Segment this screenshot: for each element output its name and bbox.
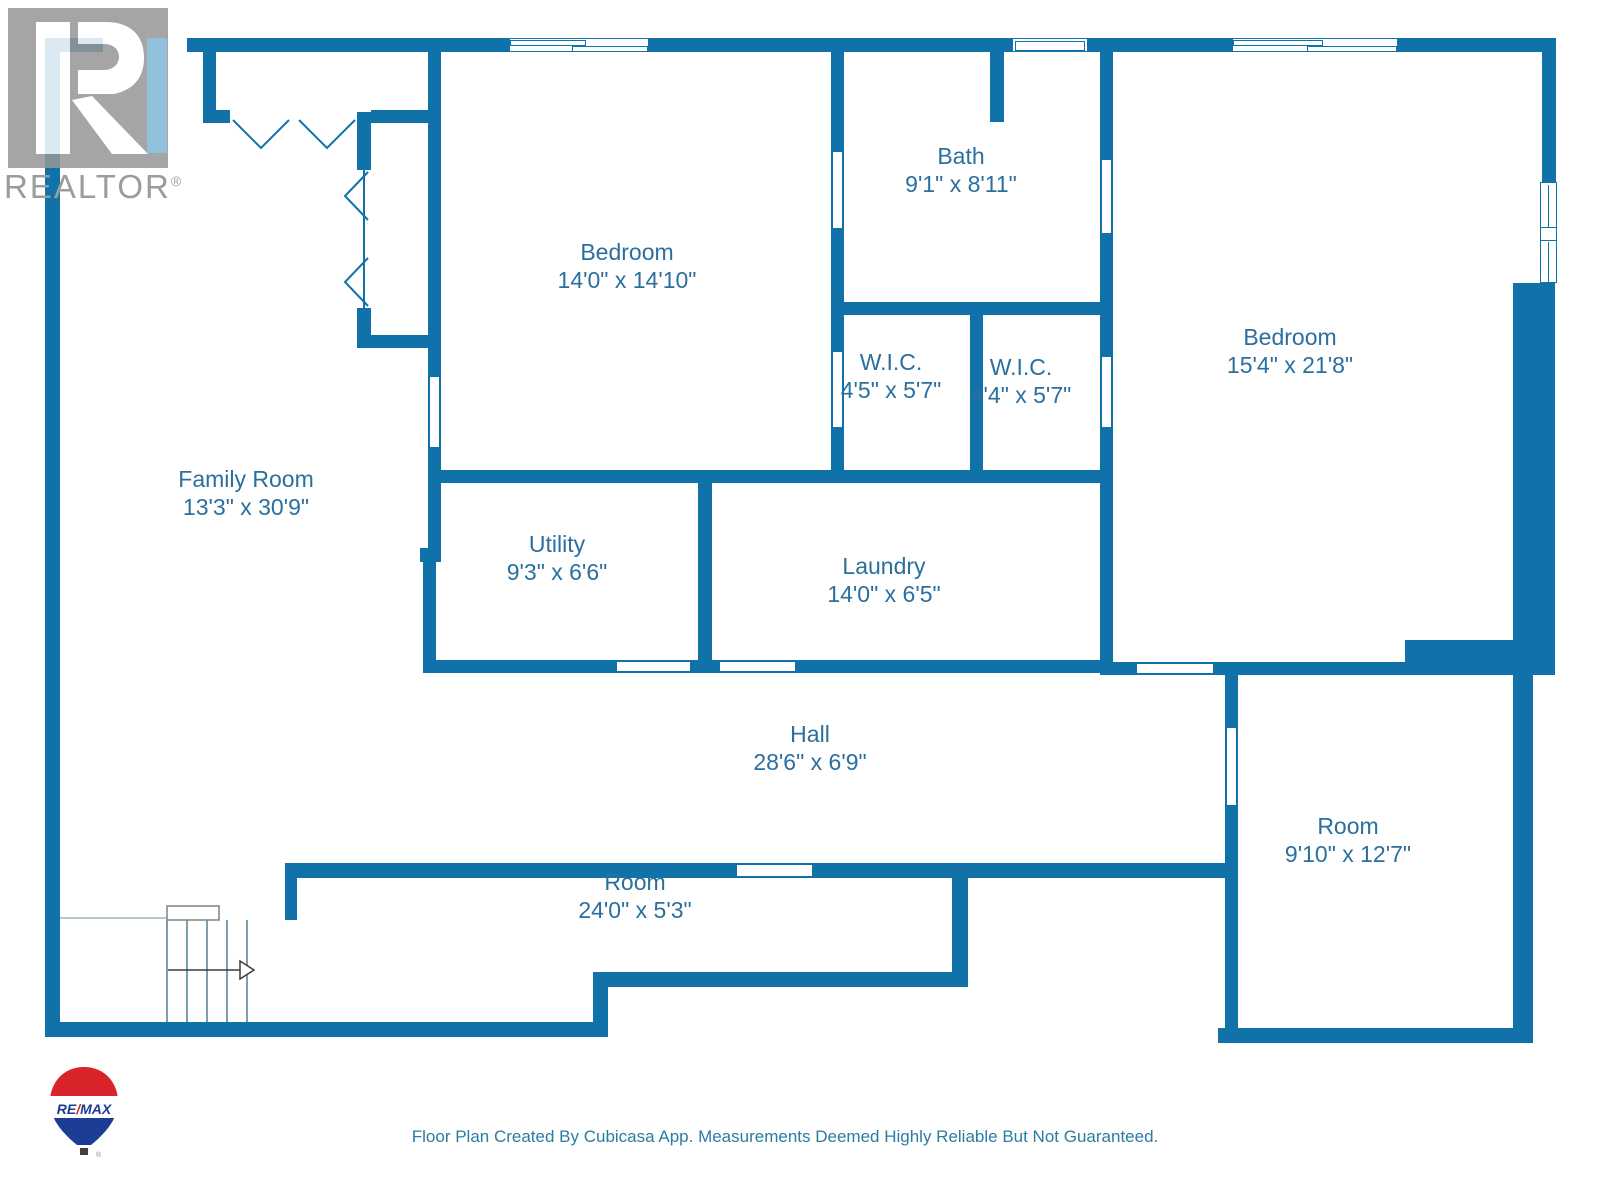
bifold-door-icon [345,258,368,306]
room-dims: 13'3" x 30'9" [178,493,313,521]
double-door-swing-icon [299,120,355,148]
room-name: Room [1285,812,1411,840]
room-name: Bedroom [558,238,697,266]
realtor-logo-icon [8,8,168,168]
realtor-wordmark: REALTOR® [4,168,183,206]
room-label-hall: Hall 28'6" x 6'9" [753,720,866,776]
room-label-utility: Utility 9'3" x 6'6" [507,530,608,586]
room-name: W.I.C. [971,353,1072,381]
room-label-wic-2: W.I.C. 4'4" x 5'7" [971,353,1072,409]
room-dims: 4'4" x 5'7" [971,381,1072,409]
room-label-wic-1: W.I.C. 4'5" x 5'7" [841,348,942,404]
realtor-text: REALTOR [4,168,171,205]
room-name: Bath [905,142,1017,170]
room-dims: 9'3" x 6'6" [507,558,608,586]
room-name: Hall [753,720,866,748]
room-name: Room [578,868,691,896]
remax-wordmark: RE/MAX [57,1101,113,1117]
room-name: W.I.C. [841,348,942,376]
room-dims: 28'6" x 6'9" [753,748,866,776]
room-name: Bedroom [1227,323,1353,351]
staircase [60,906,254,1022]
room-label-room-strip: Room 24'0" x 5'3" [578,868,691,924]
room-label-family-room: Family Room 13'3" x 30'9" [178,465,313,521]
registered-mark: ® [96,1151,102,1159]
registered-mark: ® [171,173,183,189]
floorplan-symbols [0,0,1600,1200]
room-dims: 15'4" x 21'8" [1227,351,1353,379]
floor-plan: Bedroom 14'0" x 14'10" Bath 9'1" x 8'11"… [0,0,1600,1200]
bifold-door-icon [345,172,368,220]
double-door-swing-icon [233,120,289,148]
room-label-bedroom-1: Bedroom 14'0" x 14'10" [558,238,697,294]
room-name: Family Room [178,465,313,493]
room-label-bedroom-2: Bedroom 15'4" x 21'8" [1227,323,1353,379]
room-dims: 14'0" x 6'5" [827,580,940,608]
remax-balloon-icon: RE/MAX ® [44,1064,124,1164]
room-name: Utility [507,530,608,558]
room-label-bath: Bath 9'1" x 8'11" [905,142,1017,198]
room-label-laundry: Laundry 14'0" x 6'5" [827,552,940,608]
footer-disclaimer: Floor Plan Created By Cubicasa App. Meas… [0,1127,1570,1147]
room-dims: 9'1" x 8'11" [905,170,1017,198]
balloon-basket [80,1148,88,1155]
stair-landing [167,906,219,920]
room-dims: 24'0" x 5'3" [578,896,691,924]
room-dims: 9'10" x 12'7" [1285,840,1411,868]
room-name: Laundry [827,552,940,580]
room-label-room-br: Room 9'10" x 12'7" [1285,812,1411,868]
room-dims: 14'0" x 14'10" [558,266,697,294]
room-dims: 4'5" x 5'7" [841,376,942,404]
realtor-logo-stripe [147,38,167,153]
